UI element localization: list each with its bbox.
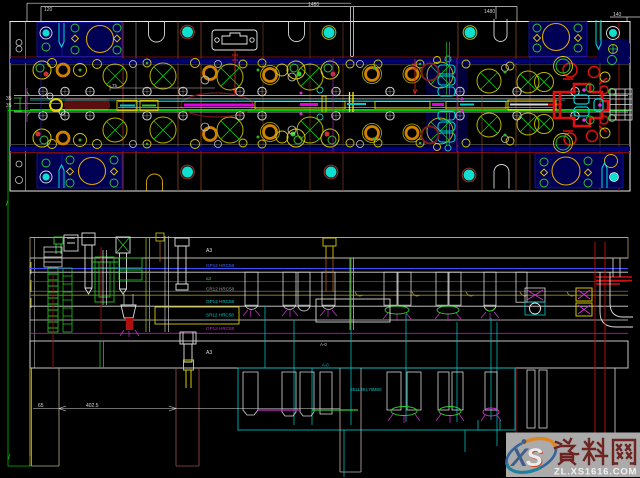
svg-text:35: 35 [6, 96, 12, 102]
svg-text:65: 65 [38, 403, 44, 409]
svg-text:1480: 1480 [308, 2, 319, 8]
svg-text:CR12 HRC58: CR12 HRC58 [206, 287, 235, 292]
svg-text:A-0: A-0 [322, 363, 329, 368]
svg-text:SELL38 L76M8S: SELL38 L76M8S [350, 387, 382, 392]
svg-text:S: S [526, 444, 543, 472]
svg-text:402.5: 402.5 [86, 403, 99, 409]
svg-text:ZL.XS1616.COM: ZL.XS1616.COM [554, 467, 637, 478]
svg-text:140: 140 [613, 12, 622, 18]
svg-text:GP12 HRC58: GP12 HRC58 [206, 263, 235, 268]
svg-text:SR12 HRC58: SR12 HRC58 [206, 313, 234, 318]
svg-text:GP12 HRC58: GP12 HRC58 [206, 326, 235, 331]
svg-text:75: 75 [112, 83, 118, 88]
svg-text:GP12 HRC58: GP12 HRC58 [206, 299, 235, 304]
svg-text:35: 35 [6, 103, 12, 109]
svg-text:A-0: A-0 [320, 342, 327, 347]
svg-text:1480: 1480 [484, 9, 495, 15]
svg-text:120: 120 [44, 7, 53, 13]
svg-text:a3: a3 [206, 276, 212, 281]
svg-text:A3: A3 [206, 350, 212, 356]
svg-text:A3: A3 [206, 248, 212, 254]
